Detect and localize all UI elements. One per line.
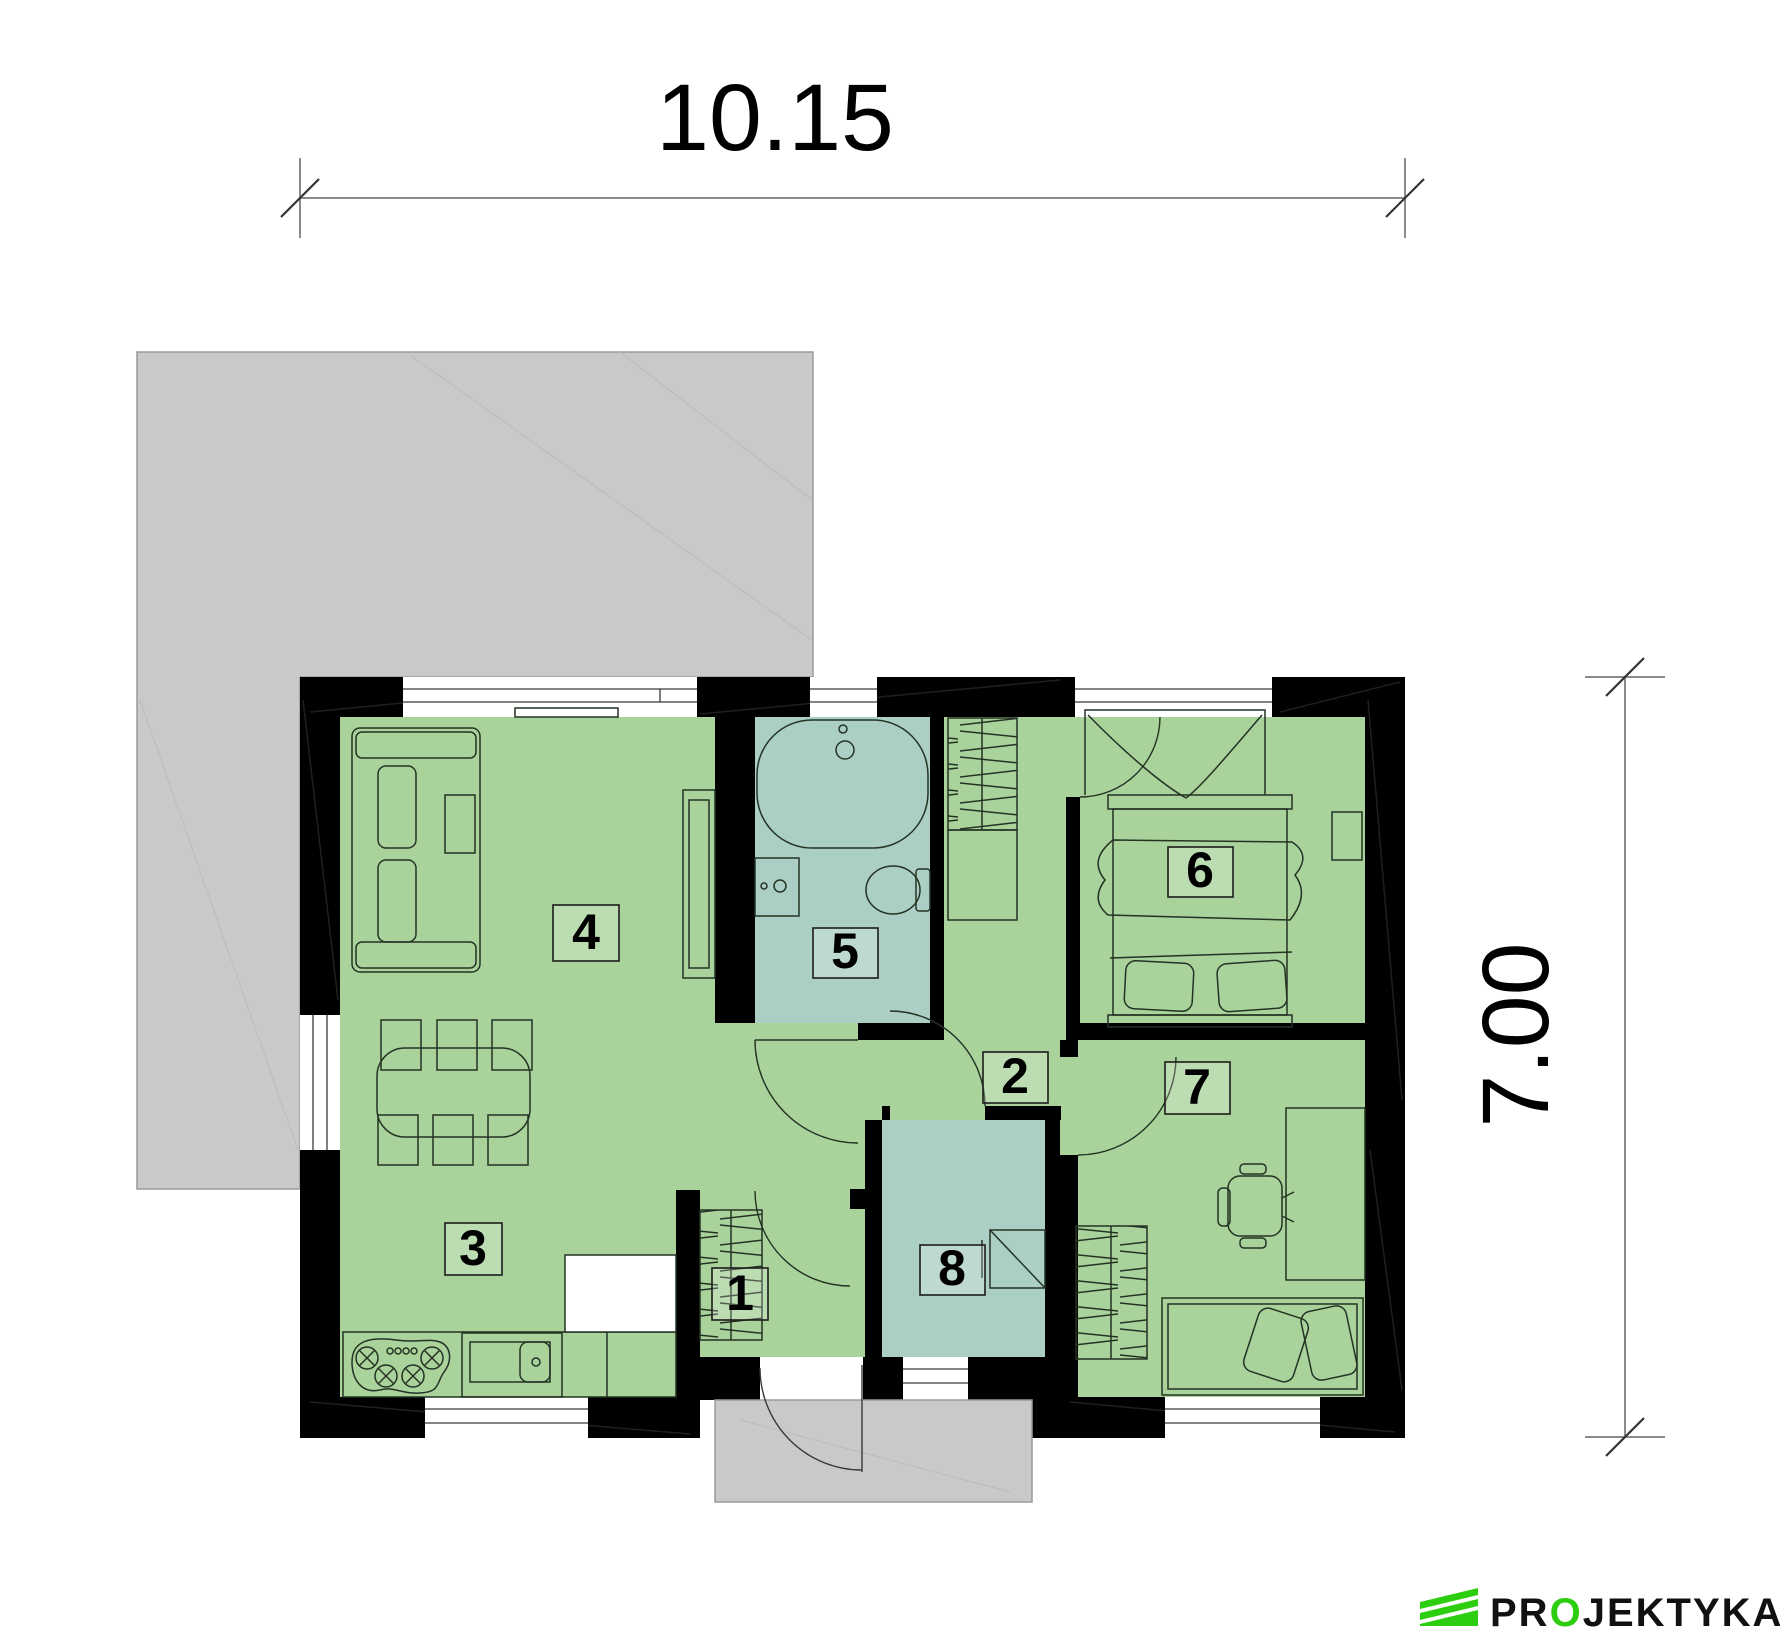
room-label-6: 6 [1168,842,1233,898]
logo-building-icon [1420,1588,1478,1626]
room-4-number: 4 [572,904,600,960]
logo-wordmark: PROJEKTYKA [1490,1591,1780,1635]
room-1-number: 1 [726,1265,754,1321]
bathtub [757,720,928,848]
washing-machine [982,1230,1045,1288]
dimension-height: 7.00 [1463,658,1665,1456]
window-room8 [903,1357,968,1400]
room-label-1: 1 [712,1265,768,1321]
room7-wardrobe [1076,1226,1147,1359]
floor-plan-drawing: 1 2 3 4 5 6 7 8 [0,0,1780,1640]
room-6-number: 6 [1186,842,1214,898]
room-8-number: 8 [938,1240,966,1296]
dimension-width-value: 10.15 [656,65,894,171]
dimension-height-value: 7.00 [1463,943,1569,1128]
entrance-porch [715,1400,1032,1502]
dimension-width: 10.15 [281,65,1424,238]
window-kitchen [425,1397,588,1438]
room-2-number: 2 [1001,1048,1029,1104]
window-bathroom [810,677,877,717]
room-7-number: 7 [1183,1059,1211,1115]
room-label-4: 4 [553,904,619,961]
room-5-number: 5 [831,923,859,979]
room-label-2: 2 [983,1048,1048,1104]
window-dining [300,1015,340,1150]
window-room7 [1165,1397,1320,1438]
entrance-opening [760,1357,863,1400]
floor-plan-page: 1 2 3 4 5 6 7 8 [0,0,1780,1640]
window-bedroom6 [1075,677,1272,717]
window-pelmet [515,708,618,717]
room-label-5: 5 [813,923,878,979]
room-label-8: 8 [920,1240,985,1296]
room-label-3: 3 [445,1220,502,1276]
room-label-7: 7 [1165,1059,1230,1115]
brand-logo: PROJEKTYKA [1420,1588,1780,1635]
room-3-number: 3 [459,1220,487,1276]
